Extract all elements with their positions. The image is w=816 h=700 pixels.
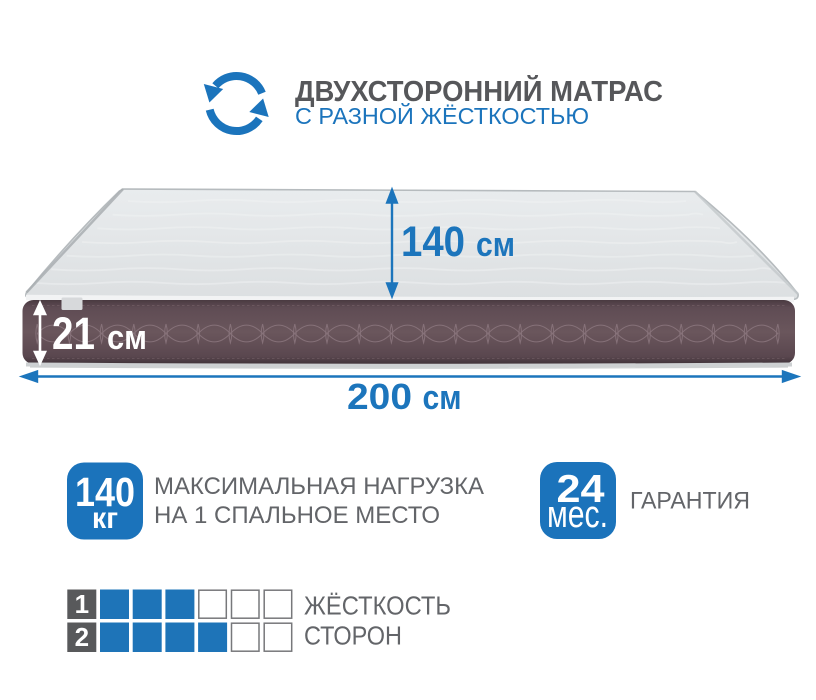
svg-text:200: 200 — [347, 376, 412, 417]
svg-text:см: см — [423, 379, 462, 417]
svg-text:МАКСИМАЛЬНАЯ НАГРУЗКА: МАКСИМАЛЬНАЯ НАГРУЗКА — [154, 473, 484, 500]
svg-text:С РАЗНОЙ ЖЁСТКОСТЬЮ: С РАЗНОЙ ЖЁСТКОСТЬЮ — [295, 102, 589, 129]
svg-text:2: 2 — [75, 622, 89, 652]
svg-text:кг: кг — [92, 502, 118, 535]
svg-text:см: см — [476, 226, 515, 264]
svg-text:см: см — [107, 319, 147, 357]
svg-text:НА 1 СПАЛЬНОЕ МЕСТО: НА 1 СПАЛЬНОЕ МЕСТО — [154, 502, 440, 529]
svg-text:СТОРОН: СТОРОН — [304, 621, 402, 651]
svg-text:ЖЁСТКОСТЬ: ЖЁСТКОСТЬ — [304, 591, 451, 621]
svg-text:1: 1 — [75, 589, 89, 619]
svg-text:21: 21 — [52, 308, 95, 359]
svg-text:140: 140 — [401, 218, 465, 266]
svg-text:ГАРАНТИЯ: ГАРАНТИЯ — [630, 488, 750, 515]
svg-text:мес.: мес. — [547, 494, 608, 536]
